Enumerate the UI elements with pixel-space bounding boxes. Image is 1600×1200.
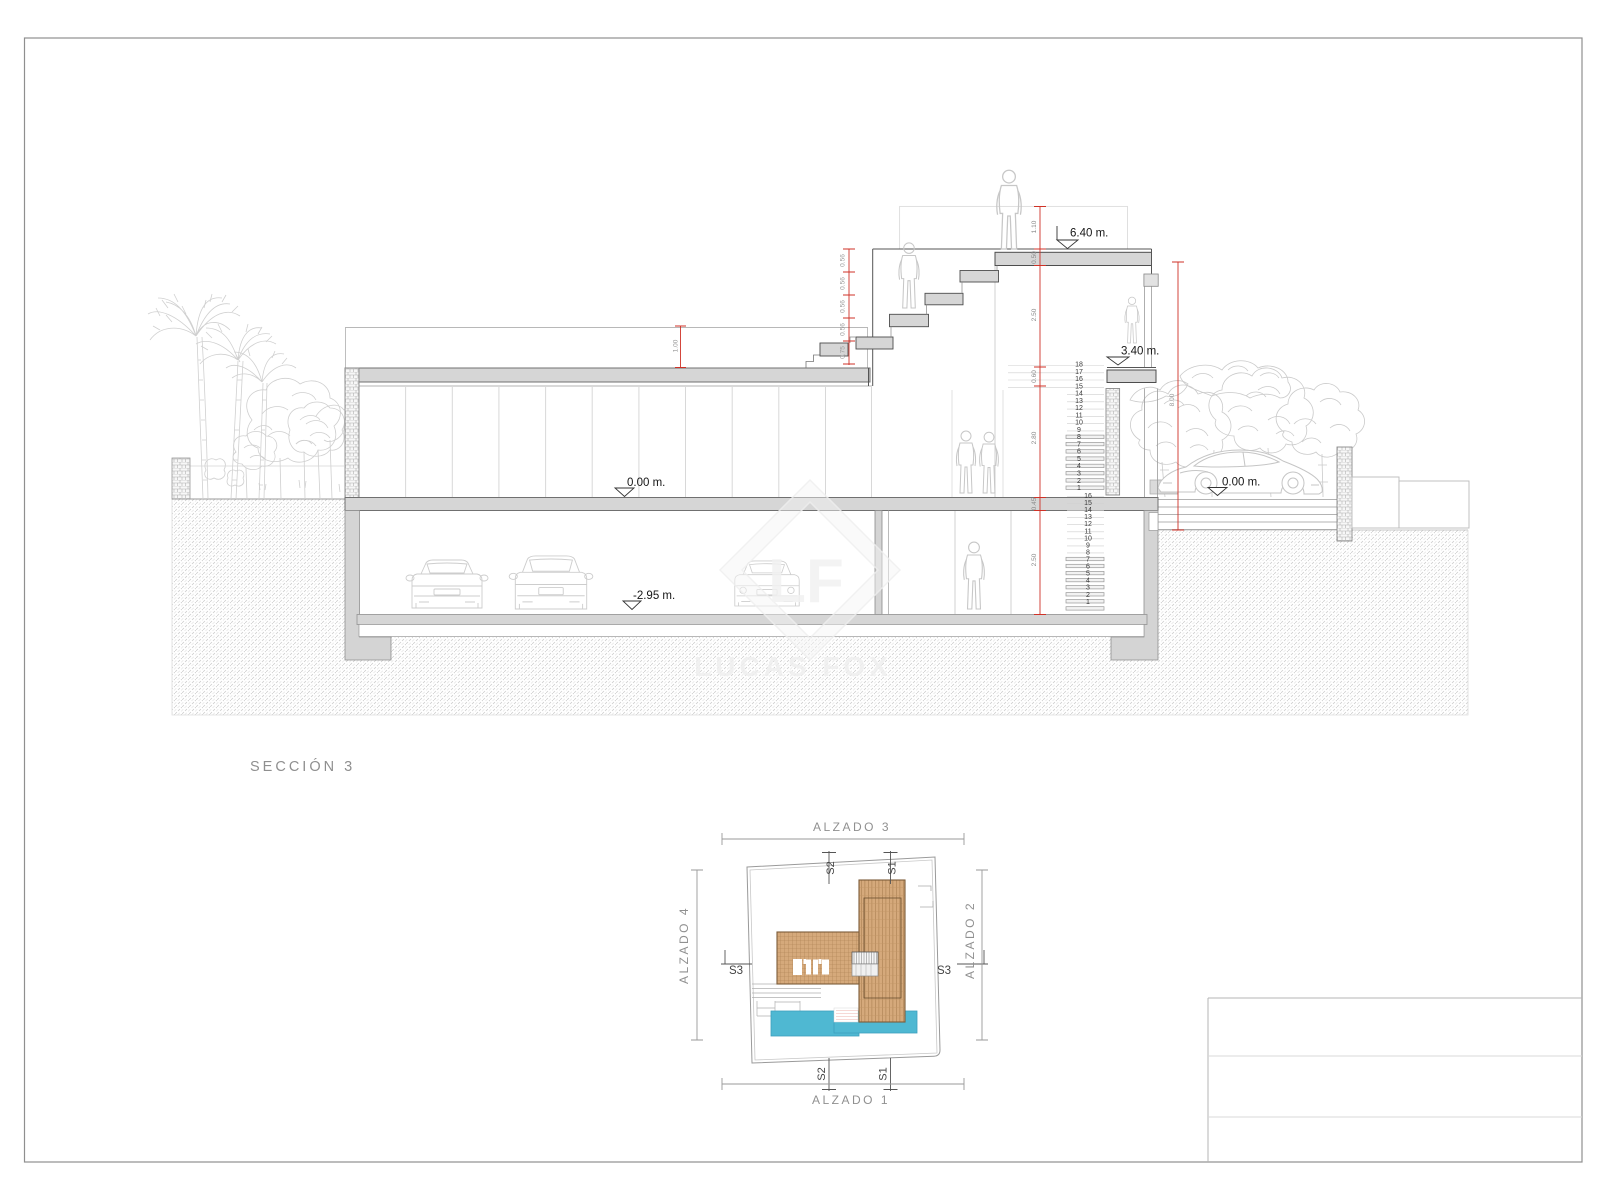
svg-text:10: 10 [1075, 420, 1083, 427]
svg-text:7: 7 [1086, 557, 1090, 564]
svg-text:ALZADO 4: ALZADO 4 [677, 906, 691, 984]
svg-text:S2: S2 [816, 1067, 828, 1080]
svg-text:12: 12 [1075, 405, 1083, 412]
svg-text:14: 14 [1084, 507, 1092, 514]
svg-text:2: 2 [1077, 478, 1081, 485]
svg-text:SECCIÓN 3: SECCIÓN 3 [250, 758, 355, 775]
svg-text:7: 7 [1077, 442, 1081, 449]
svg-text:0.00 m.: 0.00 m. [627, 477, 665, 489]
svg-text:0.00 m.: 0.00 m. [1222, 477, 1260, 489]
svg-text:16: 16 [1075, 376, 1083, 383]
svg-text:6: 6 [1086, 564, 1090, 571]
svg-text:S1: S1 [878, 1067, 890, 1080]
svg-text:5: 5 [1086, 571, 1090, 578]
svg-text:9: 9 [1077, 427, 1081, 434]
svg-text:0.56: 0.56 [840, 277, 847, 290]
svg-text:8: 8 [1086, 549, 1090, 556]
svg-text:15: 15 [1084, 500, 1092, 507]
svg-text:-2.95 m.: -2.95 m. [633, 590, 675, 602]
svg-text:1.10: 1.10 [1031, 220, 1038, 233]
svg-text:13: 13 [1075, 398, 1083, 405]
svg-text:ALZADO 3: ALZADO 3 [813, 820, 891, 834]
svg-text:3: 3 [1077, 471, 1081, 478]
svg-text:9: 9 [1086, 542, 1090, 549]
svg-text:1.00: 1.00 [673, 339, 680, 352]
svg-text:S3: S3 [937, 965, 951, 977]
svg-text:3: 3 [1086, 585, 1090, 592]
svg-text:ALZADO 2: ALZADO 2 [963, 901, 977, 979]
svg-text:2.50: 2.50 [1031, 553, 1038, 566]
svg-text:0.56: 0.56 [840, 254, 847, 267]
svg-text:0.45: 0.45 [1031, 497, 1038, 510]
svg-text:18: 18 [1075, 362, 1083, 369]
svg-text:11: 11 [1084, 528, 1091, 535]
svg-text:4: 4 [1086, 578, 1090, 585]
svg-text:2.50: 2.50 [1031, 308, 1038, 321]
svg-text:8.00: 8.00 [1169, 393, 1176, 406]
svg-text:13: 13 [1084, 514, 1092, 521]
svg-text:0.56: 0.56 [840, 323, 847, 336]
svg-text:2.80: 2.80 [1031, 431, 1038, 444]
svg-text:0.75: 0.75 [840, 346, 847, 359]
svg-text:S3: S3 [729, 965, 743, 977]
svg-text:15: 15 [1075, 383, 1083, 390]
svg-text:11: 11 [1075, 412, 1082, 419]
svg-text:1: 1 [1077, 485, 1081, 492]
svg-text:17: 17 [1075, 369, 1083, 376]
svg-text:14: 14 [1075, 391, 1083, 398]
svg-text:S2: S2 [825, 861, 837, 874]
svg-text:5: 5 [1077, 456, 1081, 463]
svg-text:12: 12 [1084, 521, 1092, 528]
svg-text:6.40 m.: 6.40 m. [1070, 228, 1108, 240]
svg-text:0.60: 0.60 [1031, 370, 1038, 383]
svg-text:3.40 m.: 3.40 m. [1121, 346, 1159, 358]
svg-text:6: 6 [1077, 449, 1081, 456]
svg-text:ALZADO 1: ALZADO 1 [812, 1093, 890, 1107]
svg-text:1: 1 [1086, 599, 1090, 606]
svg-text:LF: LF [768, 547, 844, 616]
svg-text:2: 2 [1086, 592, 1090, 599]
svg-text:S1: S1 [887, 861, 899, 874]
svg-text:10: 10 [1084, 535, 1092, 542]
svg-text:0.56: 0.56 [840, 300, 847, 313]
svg-text:8: 8 [1077, 434, 1081, 441]
svg-text:LUCAS FOX: LUCAS FOX [694, 651, 892, 682]
svg-text:0.50: 0.50 [1031, 251, 1038, 264]
svg-text:4: 4 [1077, 463, 1081, 470]
svg-text:16: 16 [1084, 493, 1092, 500]
